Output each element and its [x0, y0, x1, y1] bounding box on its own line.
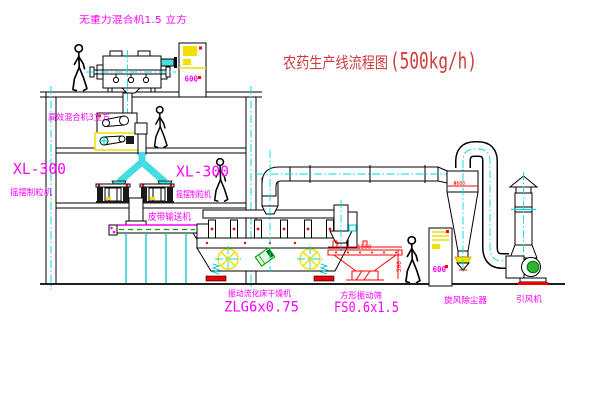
induced-draft-fan: [506, 256, 548, 285]
screen-length-dim: 1500: [357, 244, 372, 251]
discharge-chute: [126, 198, 146, 225]
granulator-right-name: 摇摆制粒机: [176, 189, 211, 201]
vibrating-screen-model: FS0.6x1.5: [334, 300, 399, 316]
gravity-free-mixer-label: 无重力混合机1.5 立方: [79, 14, 187, 26]
cabinet-right-label: 600: [433, 265, 447, 274]
fluid-bed-dryer-model: ZLG6x0.75: [224, 300, 299, 316]
granulator-left-model: XL-300: [13, 160, 66, 178]
y-distribution-pipe: [112, 152, 172, 187]
fluid-bed-dryer: [197, 210, 347, 281]
process-flow-diagram: 600: [0, 0, 600, 403]
person-ground: [406, 237, 420, 283]
fluid-bed-dryer-name: 振动流化床干燥机: [228, 288, 291, 300]
high-efficiency-mixer-label: 高效混合机3立方: [48, 111, 110, 123]
control-cabinet-top: 600: [179, 43, 206, 97]
belt-conveyor: [109, 225, 210, 283]
control-cabinet-right: 600: [429, 228, 452, 286]
person-floor2: [155, 107, 167, 148]
person-on-roof: [73, 45, 87, 91]
diagram-title-capacity: (500kg/h): [390, 50, 477, 75]
granulator-left-machine: [96, 184, 130, 204]
screen-height-dim: 500: [396, 261, 403, 272]
diagram-title: 农药生产线流程图: [283, 54, 388, 72]
granulator-right-model: XL-300: [176, 163, 229, 181]
granulator-right-machine: [140, 184, 174, 204]
fan-label: 引风机: [516, 293, 542, 305]
granulator-left-name: 摇摆制粒机: [10, 187, 52, 199]
belt-conveyor-label: 皮带输送机: [148, 211, 191, 223]
cabinet-top-label: 600: [185, 75, 199, 84]
cad-drawing-canvas: 600: [0, 0, 600, 403]
cyclone-label: 旋风除尘器: [444, 294, 487, 306]
